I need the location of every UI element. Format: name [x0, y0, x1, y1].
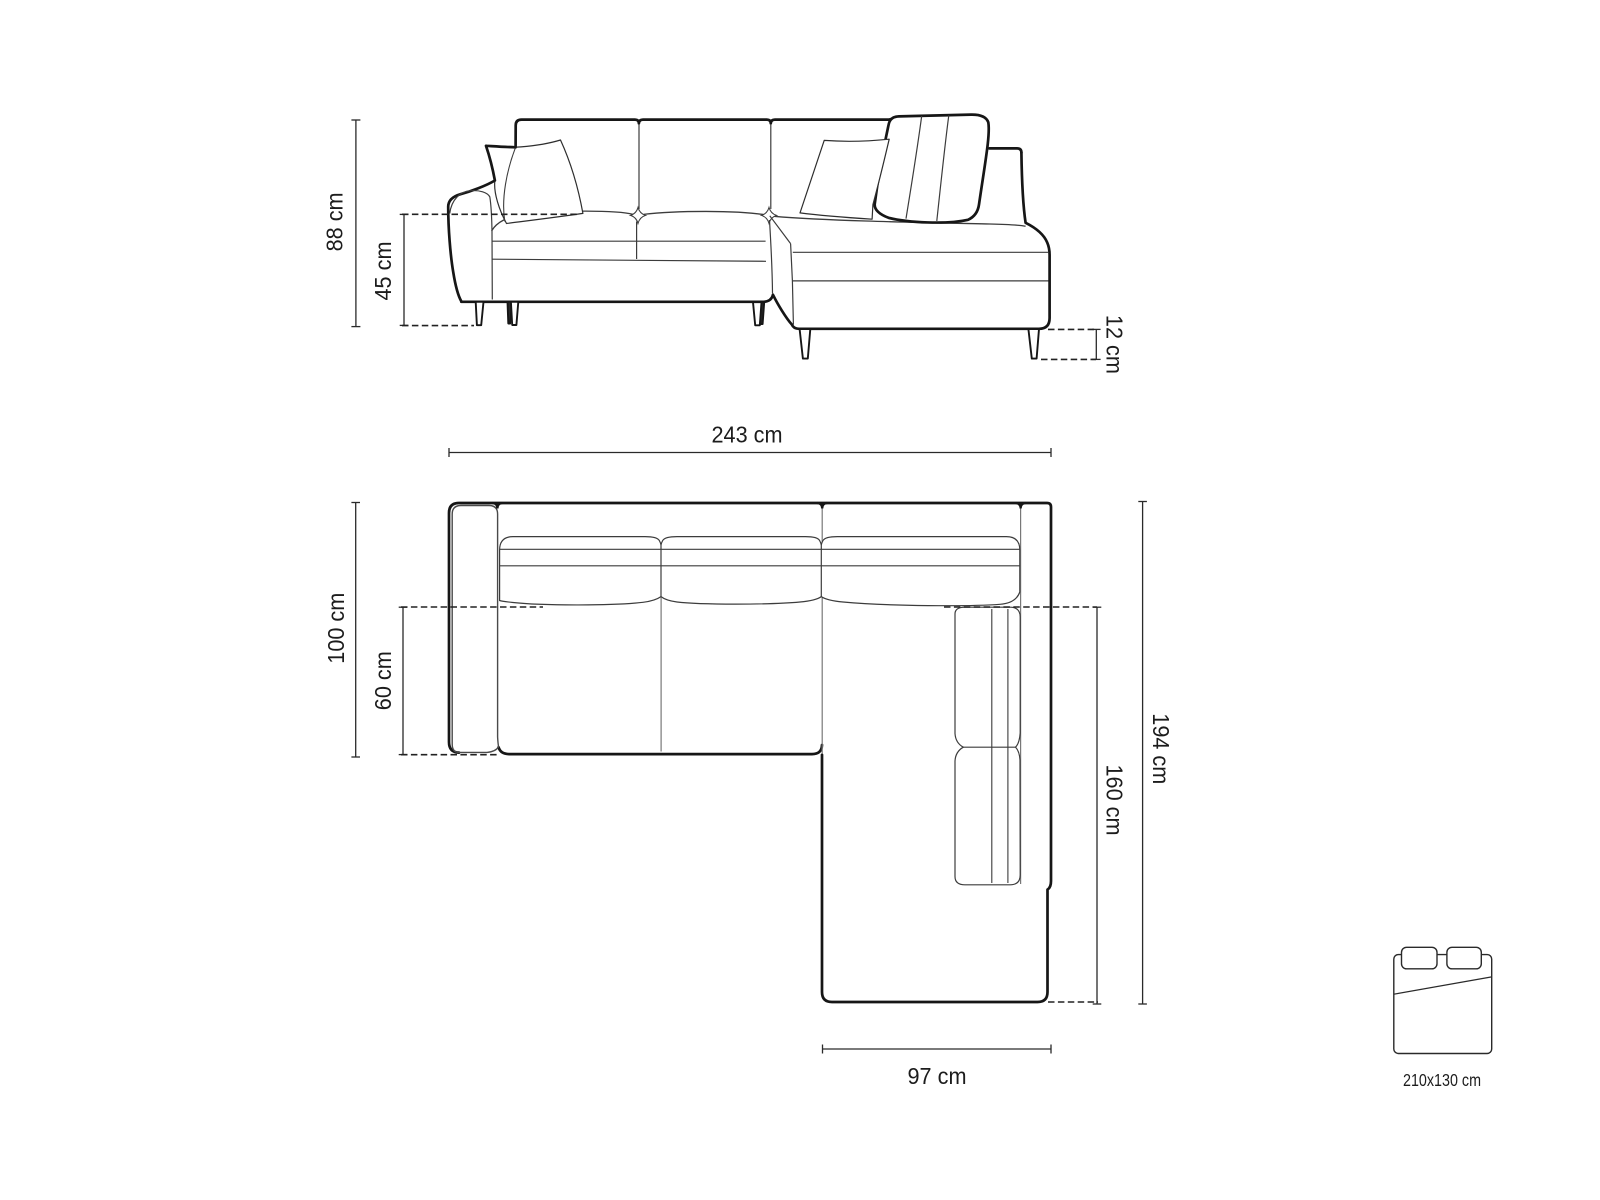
- svg-text:160 cm: 160 cm: [1101, 765, 1127, 836]
- svg-text:88 cm: 88 cm: [322, 192, 348, 251]
- svg-text:243 cm: 243 cm: [712, 421, 783, 447]
- svg-text:12 cm: 12 cm: [1102, 315, 1128, 374]
- svg-text:210x130 cm: 210x130 cm: [1403, 1070, 1481, 1090]
- svg-text:194 cm: 194 cm: [1148, 713, 1174, 784]
- svg-text:60 cm: 60 cm: [370, 651, 396, 710]
- svg-text:100 cm: 100 cm: [323, 593, 349, 664]
- svg-text:45 cm: 45 cm: [370, 242, 396, 301]
- svg-text:97 cm: 97 cm: [908, 1063, 967, 1089]
